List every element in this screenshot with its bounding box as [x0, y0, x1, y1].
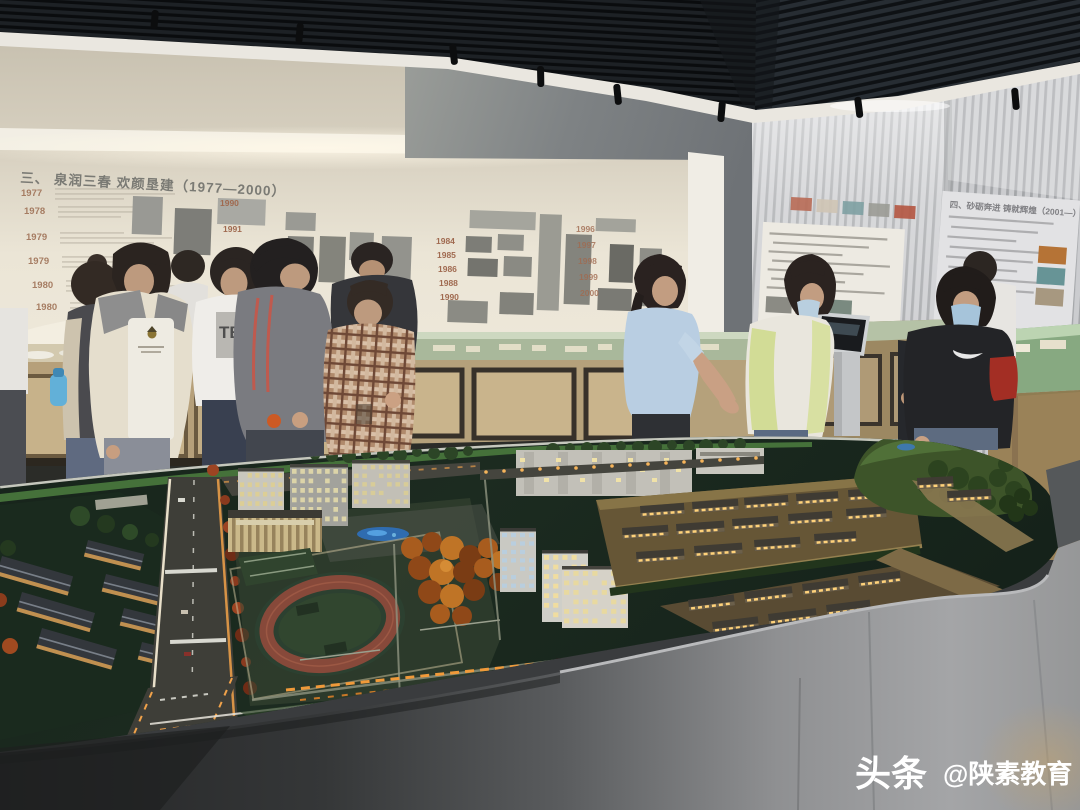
svg-text:1980: 1980: [32, 280, 53, 291]
svg-text:1996: 1996: [576, 224, 595, 234]
svg-text:1980: 1980: [36, 302, 57, 313]
svg-text:1998: 1998: [578, 256, 597, 266]
svg-text:头条: 头条: [855, 753, 927, 794]
svg-text:1979: 1979: [28, 256, 49, 267]
svg-text:1997: 1997: [577, 240, 596, 250]
svg-text:1991: 1991: [223, 224, 242, 234]
svg-text:1990: 1990: [220, 198, 239, 208]
svg-text:1977: 1977: [21, 188, 42, 199]
svg-text:1986: 1986: [438, 264, 457, 274]
svg-text:1999: 1999: [579, 272, 598, 282]
svg-text:1984: 1984: [436, 236, 455, 246]
svg-text:1990: 1990: [440, 292, 459, 302]
svg-text:1978: 1978: [24, 206, 45, 217]
svg-text:@陕素教育: @陕素教育: [943, 759, 1072, 789]
svg-text:2000: 2000: [580, 288, 599, 298]
svg-text:1985: 1985: [437, 250, 456, 260]
svg-text:1979: 1979: [26, 232, 47, 243]
svg-text:1988: 1988: [439, 278, 458, 288]
